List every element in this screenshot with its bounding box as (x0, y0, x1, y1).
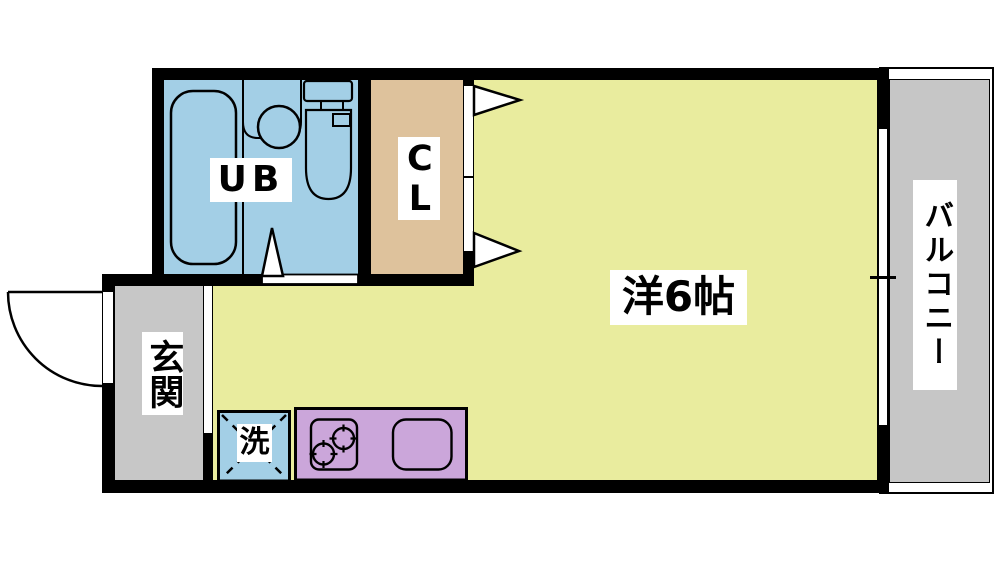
balcony-label: バルコニー (913, 180, 957, 390)
entrance-door-arc-icon (8, 292, 102, 386)
wall-bottom (102, 480, 889, 493)
closet-pillar-bottom (463, 251, 474, 286)
laundry-label: 洗 (237, 424, 272, 462)
closet-label: CL (398, 137, 440, 220)
main-room-label: 洋6帖 (610, 270, 747, 325)
entrance-door-opening (103, 292, 113, 383)
wall-top (152, 68, 889, 80)
floor-plan: UB CL 洋6帖 玄関 洗 バルコニー (0, 0, 1000, 562)
wall-right-top (877, 68, 889, 127)
closet-pillar-top (463, 68, 474, 86)
unit-bath-label: UB (210, 158, 292, 202)
entrance-passage-opening (203, 286, 213, 433)
closet-door-panels (463, 86, 474, 251)
sliding-window-icon (877, 127, 889, 427)
wall-bath-closet (358, 68, 371, 274)
wall-mid (102, 274, 474, 286)
wall-right-bottom (877, 427, 889, 482)
wall-left-bath (152, 68, 164, 274)
entrance-label: 玄関 (142, 332, 183, 415)
wall-stub-entrance (203, 433, 213, 482)
